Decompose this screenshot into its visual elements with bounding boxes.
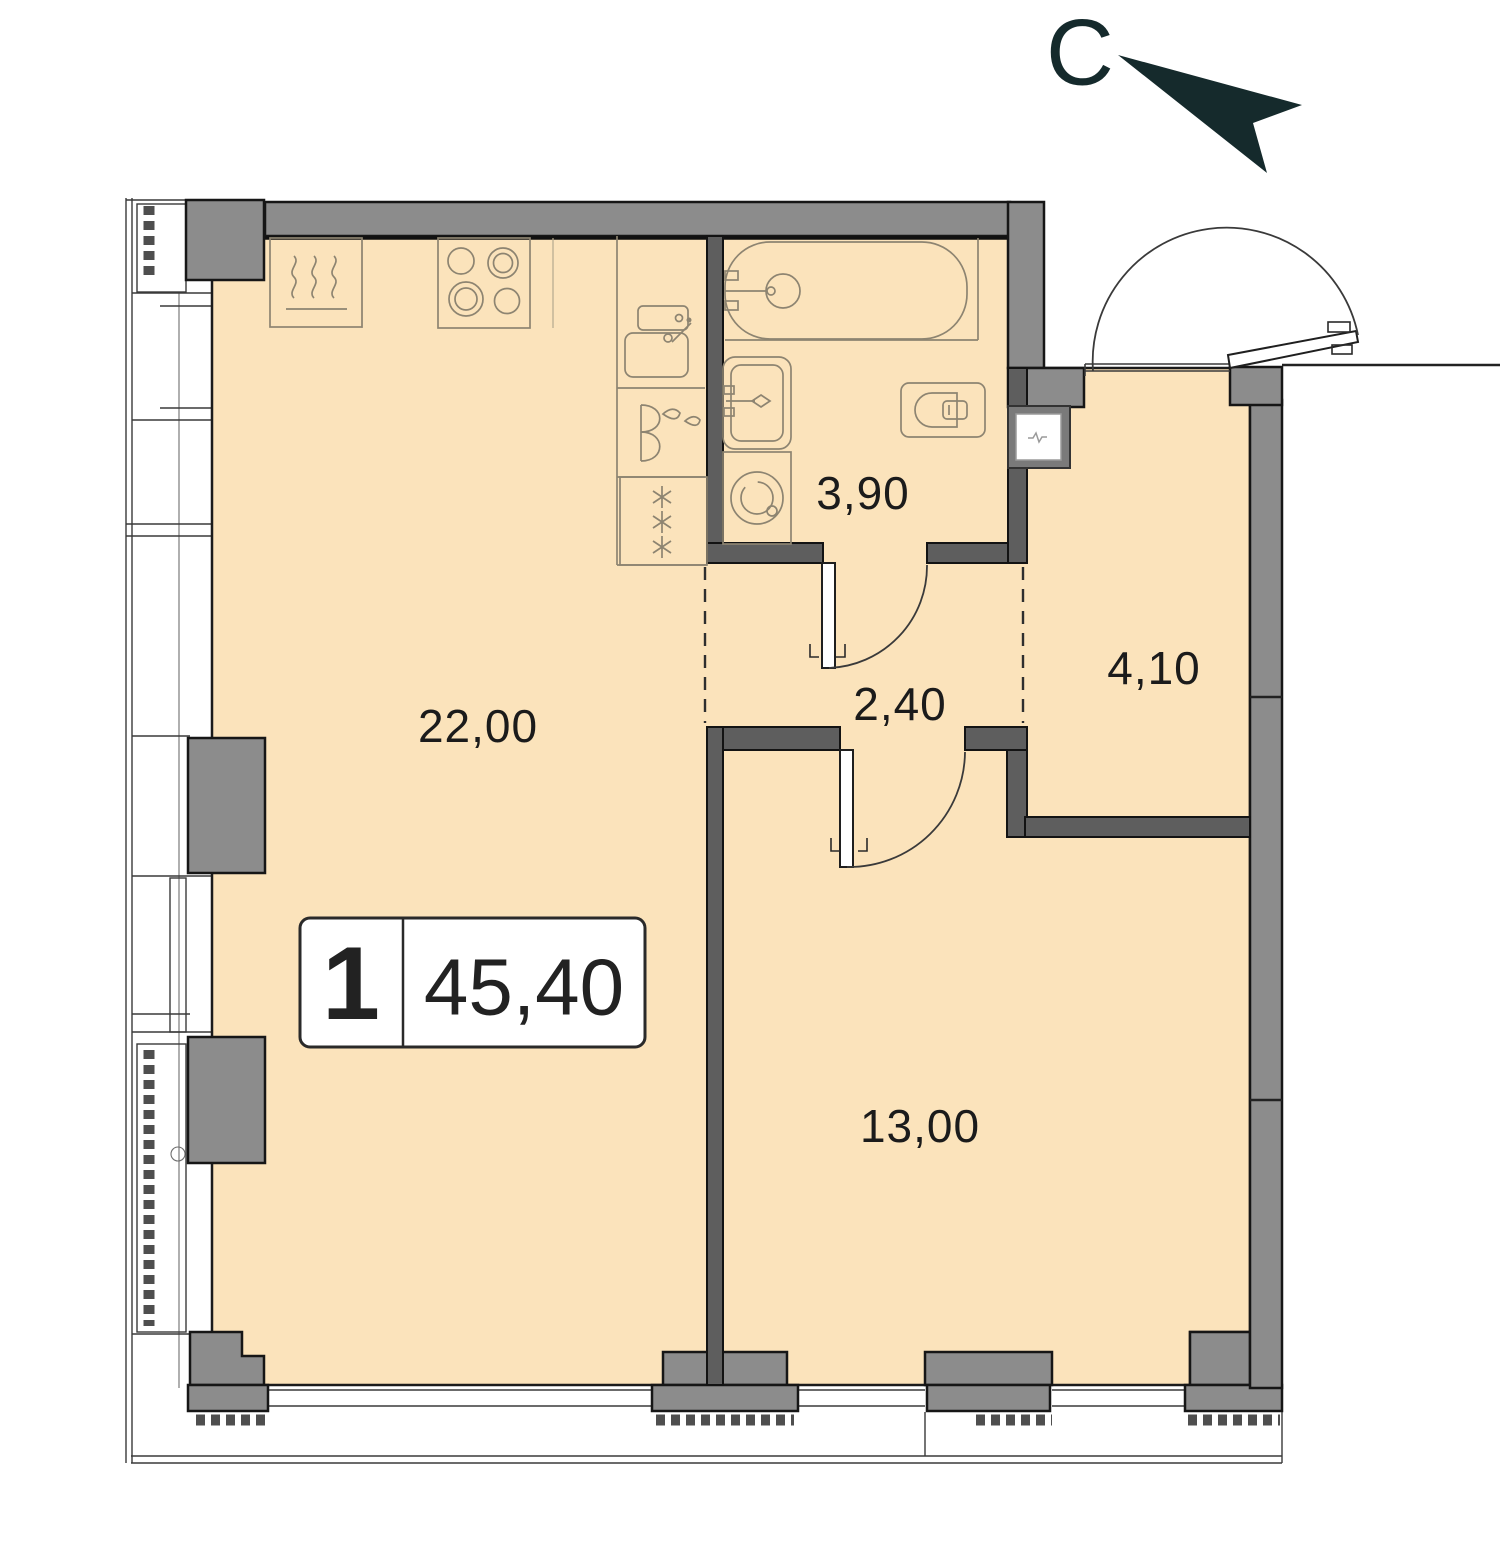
wall-bedroom-top-right [965,727,1027,750]
wall-bathroom-right [1008,202,1044,368]
rooms-count-label: 1 [322,926,380,1042]
pier-top-left [186,200,264,280]
pier-left-a [188,738,265,873]
wall-entry-bottom [1025,817,1250,837]
north-indicator: С [1046,0,1302,173]
floor-plan-canvas: 22,00 3,90 2,40 4,10 13,00 1 45,40 С [0,0,1500,1555]
wall-living-bedroom [707,727,723,1385]
wall-bathroom-bottom-left [707,543,823,563]
entry-area-label: 4,10 [1107,642,1201,694]
pier-bottom-mid-right [925,1352,1052,1385]
window-frame-middle [170,878,186,1032]
wall-bedroom-top-left [707,727,840,750]
floor-plan-drawing: 22,00 3,90 2,40 4,10 13,00 1 45,40 С [0,0,1500,1555]
hallway-area-label: 2,40 [853,678,947,730]
pier-bottom-mid-left [663,1352,787,1385]
total-area-label: 45,40 [424,943,624,1032]
bathroom-door-leaf [822,563,835,668]
pier-corner-bottom-right [1190,1332,1250,1385]
north-arrow-icon [1118,55,1302,173]
pier-left-b [188,1037,265,1163]
bedroom-door-leaf [840,750,853,867]
wall-kitchen-bathroom [707,236,723,563]
window-frame-top [137,204,186,292]
entry-door-jamb [1230,367,1282,405]
bathroom-area-label: 3,90 [816,467,910,519]
facade-detail-circle [171,1147,185,1161]
wall-right [1250,400,1282,1388]
north-letter: С [1046,0,1114,105]
electrical-panel-icon [1008,406,1070,468]
living-kitchen-area-label: 22,00 [418,700,538,752]
bedroom-area-label: 13,00 [860,1100,980,1152]
entrance-door-leaf [1228,331,1358,368]
wall-top [265,202,1010,236]
apartment-info-badge: 1 45,40 [300,918,645,1047]
